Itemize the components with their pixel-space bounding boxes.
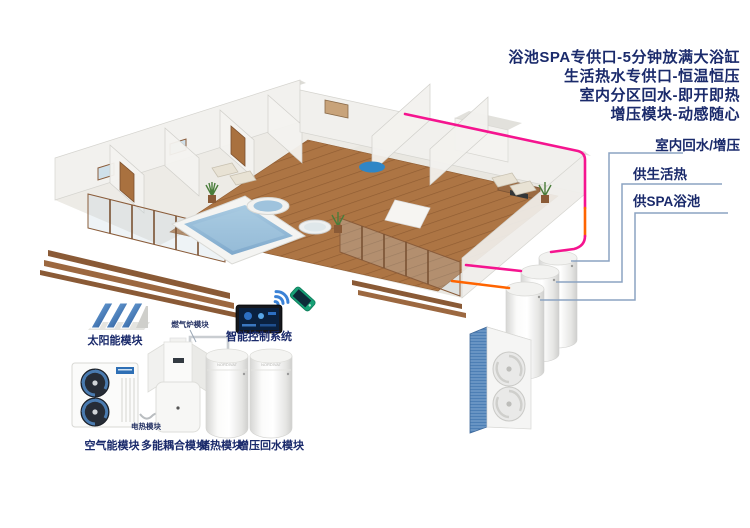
label-multi-coupling: 多能耦合模块	[141, 437, 207, 453]
fan-bottom	[81, 398, 109, 426]
spa-tub	[247, 198, 289, 215]
feature-line-3: 室内分区回水-即开即热	[310, 86, 740, 105]
tank-brand-text: NORDIVAT	[217, 362, 238, 367]
solar-panel-icon	[86, 294, 152, 334]
label-electric-heating: 电热模块	[131, 421, 161, 432]
infographic-canvas: 浴池SPA专供口-5分钟放满大浴缸 生活热水专供口-恒温恒压 室内分区回水-即开…	[0, 0, 750, 528]
booster-return-module: NORDIVAT	[248, 344, 294, 440]
round-bathtub	[299, 220, 331, 234]
label-solar-module: 太阳能模块	[88, 332, 143, 348]
label-air-source: 空气能模块	[85, 437, 140, 453]
label-spa-pool: 供SPA浴池	[633, 190, 700, 210]
booster-tank-icon: NORDIVAT	[248, 344, 294, 440]
label-gas-furnace: 燃气炉模块	[171, 319, 209, 330]
label-smart-control: 智能控制系统	[226, 328, 292, 344]
feature-line-1: 浴池SPA专供口-5分钟放满大浴缸	[310, 48, 740, 67]
smartphone-icon	[289, 286, 316, 312]
storage-tank-icon: NORDIVAT	[204, 344, 250, 440]
label-heat-storage: 储热模块	[199, 437, 243, 453]
patio-table	[359, 162, 385, 173]
pipe-pink-elbow	[551, 236, 585, 252]
label-indoor-return: 室内回水/增压	[655, 134, 740, 154]
tank-brand-text: NORDIVAT	[261, 362, 282, 367]
feature-title-block: 浴池SPA专供口-5分钟放满大浴缸 生活热水专供口-恒温恒压 室内分区回水-即开…	[310, 48, 740, 124]
heat-storage-module: NORDIVAT	[204, 344, 250, 440]
fan-top	[81, 369, 109, 397]
feature-line-2: 生活热水专供口-恒温恒压	[310, 67, 740, 86]
feature-line-4: 增压模块-动感随心	[310, 105, 740, 124]
solar-module	[86, 294, 152, 334]
outdoor-heat-pump	[470, 327, 531, 433]
label-booster-return: 增压回水模块	[238, 437, 304, 453]
label-domestic-hot: 供生活热	[633, 163, 687, 183]
